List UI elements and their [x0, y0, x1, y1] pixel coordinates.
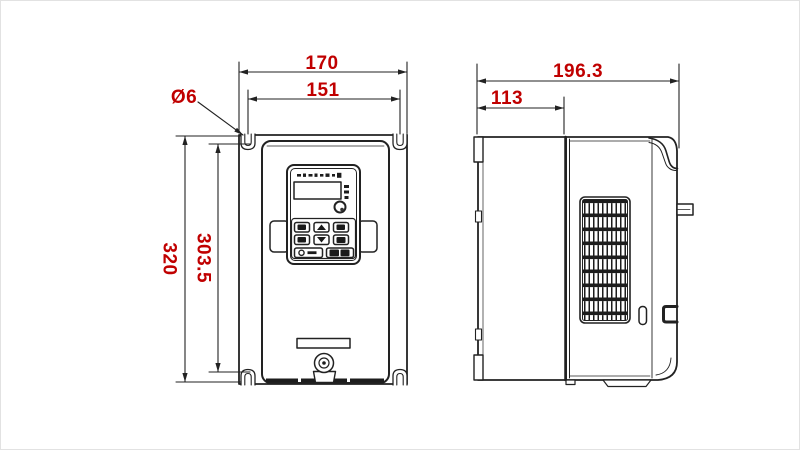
display-side-marks — [344, 185, 349, 199]
heatsink-foot — [603, 380, 651, 387]
knob — [335, 202, 346, 213]
cover-tab-top — [474, 137, 483, 162]
front-cover — [478, 137, 566, 380]
dim-label-front-depth: 113 — [491, 88, 523, 109]
keypad-panel — [287, 165, 360, 264]
mounting-slot-top-left — [241, 134, 255, 150]
side-view — [474, 137, 693, 387]
display — [294, 182, 341, 199]
technical-drawing: 170 151 Ø6 320 303.5 196.3 113 — [0, 0, 800, 450]
front-view — [239, 134, 407, 385]
cover-tab-bottom — [474, 355, 483, 380]
dim-label-mount-height: 303.5 — [192, 233, 213, 283]
dim-label-overall-width: 170 — [305, 53, 338, 74]
run-dash-icon — [308, 251, 317, 254]
dim-label-overall-height: 320 — [158, 242, 179, 275]
cover-latch-upper — [476, 211, 482, 222]
side-dimensions: 196.3 113 — [477, 61, 679, 148]
dim-label-hole-diameter: Ø6 — [171, 87, 197, 108]
dim-label-overall-depth: 196.3 — [553, 61, 603, 82]
dim-label-mount-width: 151 — [306, 80, 339, 101]
mounting-slot-bottom-right — [393, 370, 407, 386]
knob-shadow — [340, 208, 344, 212]
diagram-canvas: 170 151 Ø6 320 303.5 196.3 113 — [0, 0, 800, 450]
cover-latch-lower — [476, 329, 482, 340]
vent-grille-slats — [583, 200, 628, 321]
mounting-slot-top-right — [393, 134, 407, 150]
base-step — [566, 380, 575, 385]
screw-center — [322, 361, 326, 365]
bottom-slot — [297, 339, 350, 349]
